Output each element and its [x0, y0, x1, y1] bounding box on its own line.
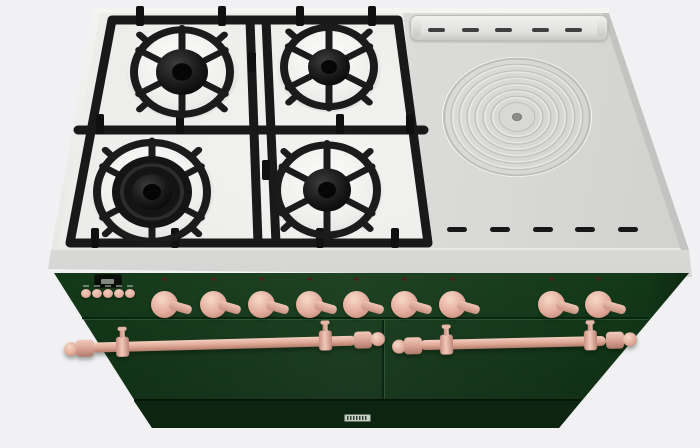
- knob-row: [0, 0, 700, 448]
- control-knob: [238, 276, 286, 322]
- control-knob: [141, 276, 189, 322]
- rail-bracket-pin: [323, 323, 328, 331]
- control-knob: [429, 276, 477, 322]
- control-knob: [381, 276, 429, 322]
- knob-indicator-dot: [402, 277, 407, 281]
- rail-bracket-pin: [444, 328, 449, 336]
- rail-bracket-pin: [588, 323, 593, 331]
- knob-indicator-dot: [596, 277, 601, 281]
- control-knob: [528, 276, 576, 322]
- rail-bracket: [440, 334, 453, 354]
- rail-cap: [606, 332, 624, 349]
- rail-bracket: [319, 330, 333, 350]
- rail-bracket: [584, 330, 597, 350]
- control-knob: [575, 276, 623, 322]
- rail-finial-right: [371, 332, 385, 346]
- control-knob: [286, 276, 334, 322]
- knob-indicator-dot: [211, 277, 216, 281]
- knob-indicator-dot: [307, 277, 312, 281]
- rail-bracket-pin: [120, 330, 125, 338]
- rail-bracket: [116, 337, 130, 357]
- range-cooker-render: 3D product render of a freestanding rang…: [0, 0, 700, 448]
- rail-finial-right: [623, 332, 637, 346]
- knob-indicator-dot: [450, 277, 455, 281]
- knob-indicator-dot: [259, 277, 264, 281]
- rail-cap: [354, 331, 372, 348]
- knob-indicator-dot: [354, 277, 359, 281]
- control-knob: [333, 276, 381, 322]
- knob-indicator-dot: [549, 277, 554, 281]
- knob-indicator-dot: [162, 277, 167, 281]
- control-knob: [190, 276, 238, 322]
- rail-bar: [92, 336, 356, 353]
- brand-badge: [344, 414, 371, 422]
